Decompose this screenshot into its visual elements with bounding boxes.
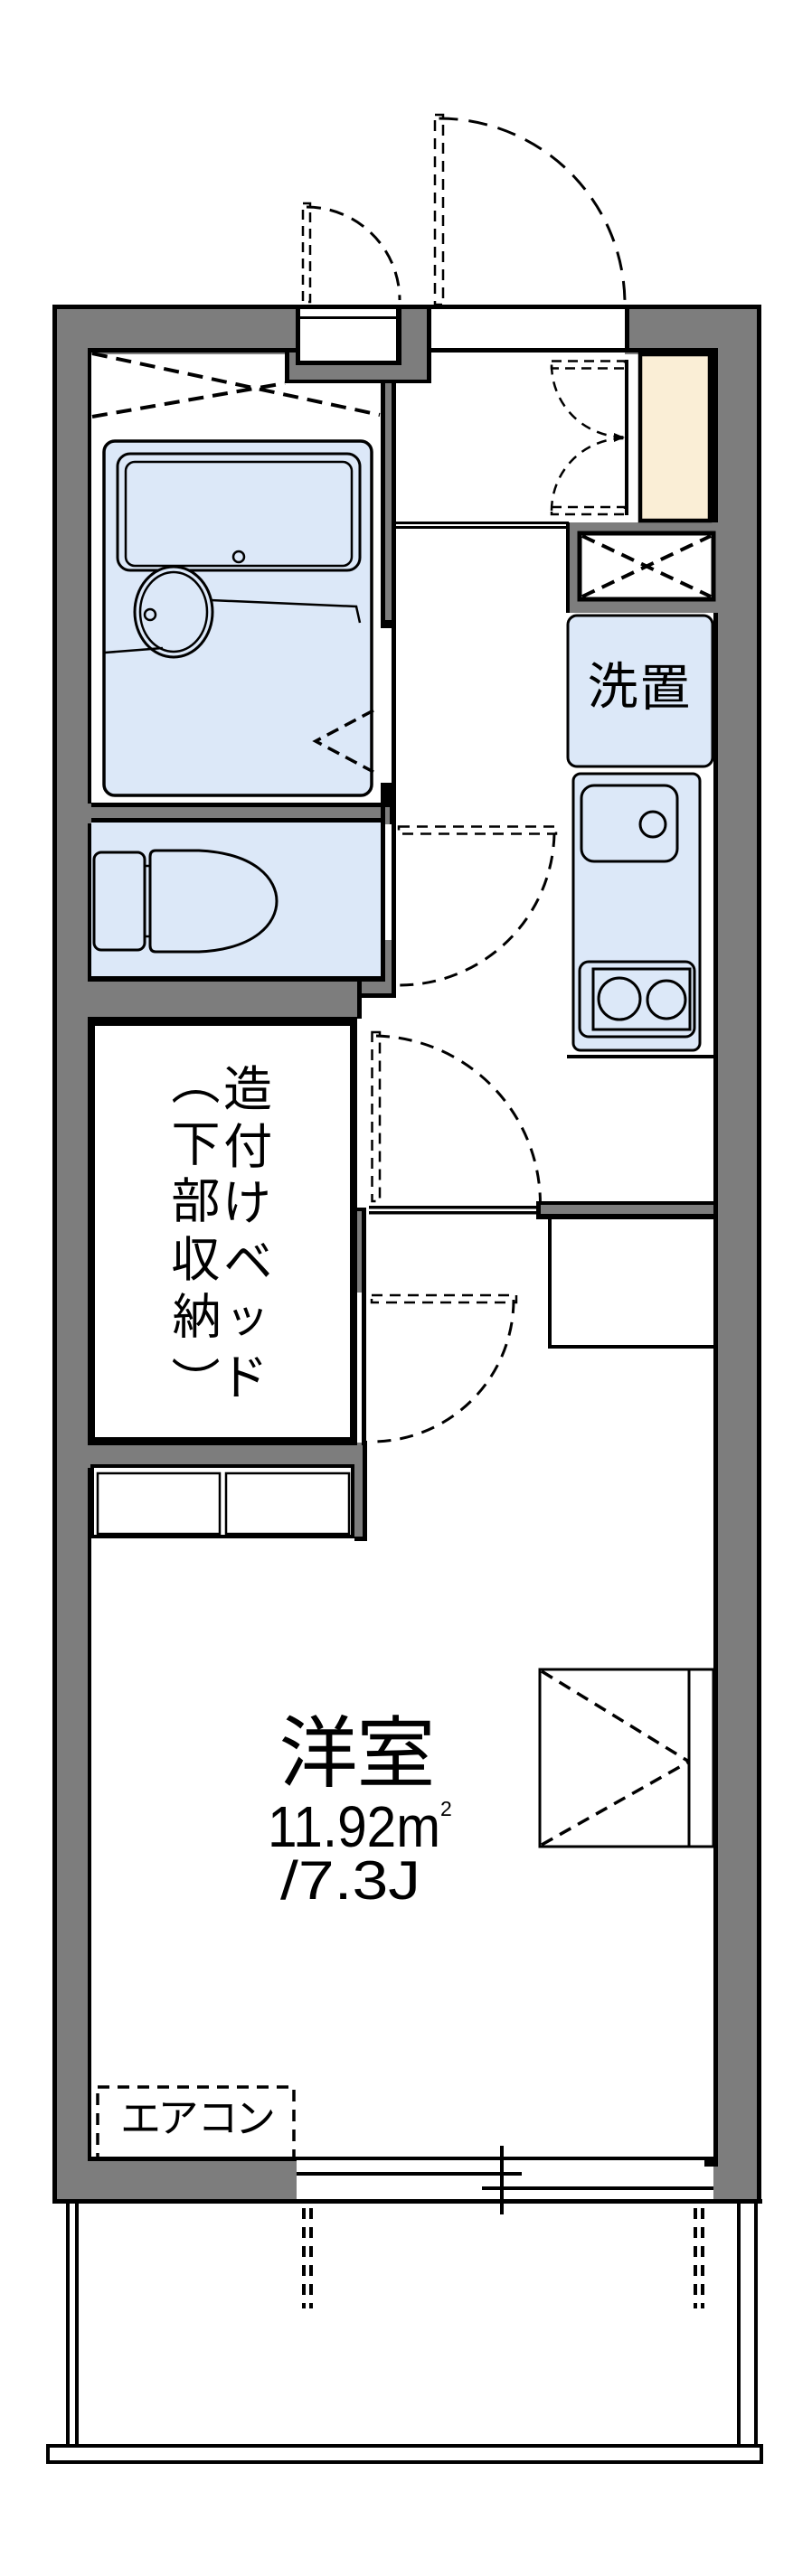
svg-text:2: 2 (440, 1797, 452, 1820)
svg-text:/7.3J: /7.3J (280, 1850, 420, 1911)
